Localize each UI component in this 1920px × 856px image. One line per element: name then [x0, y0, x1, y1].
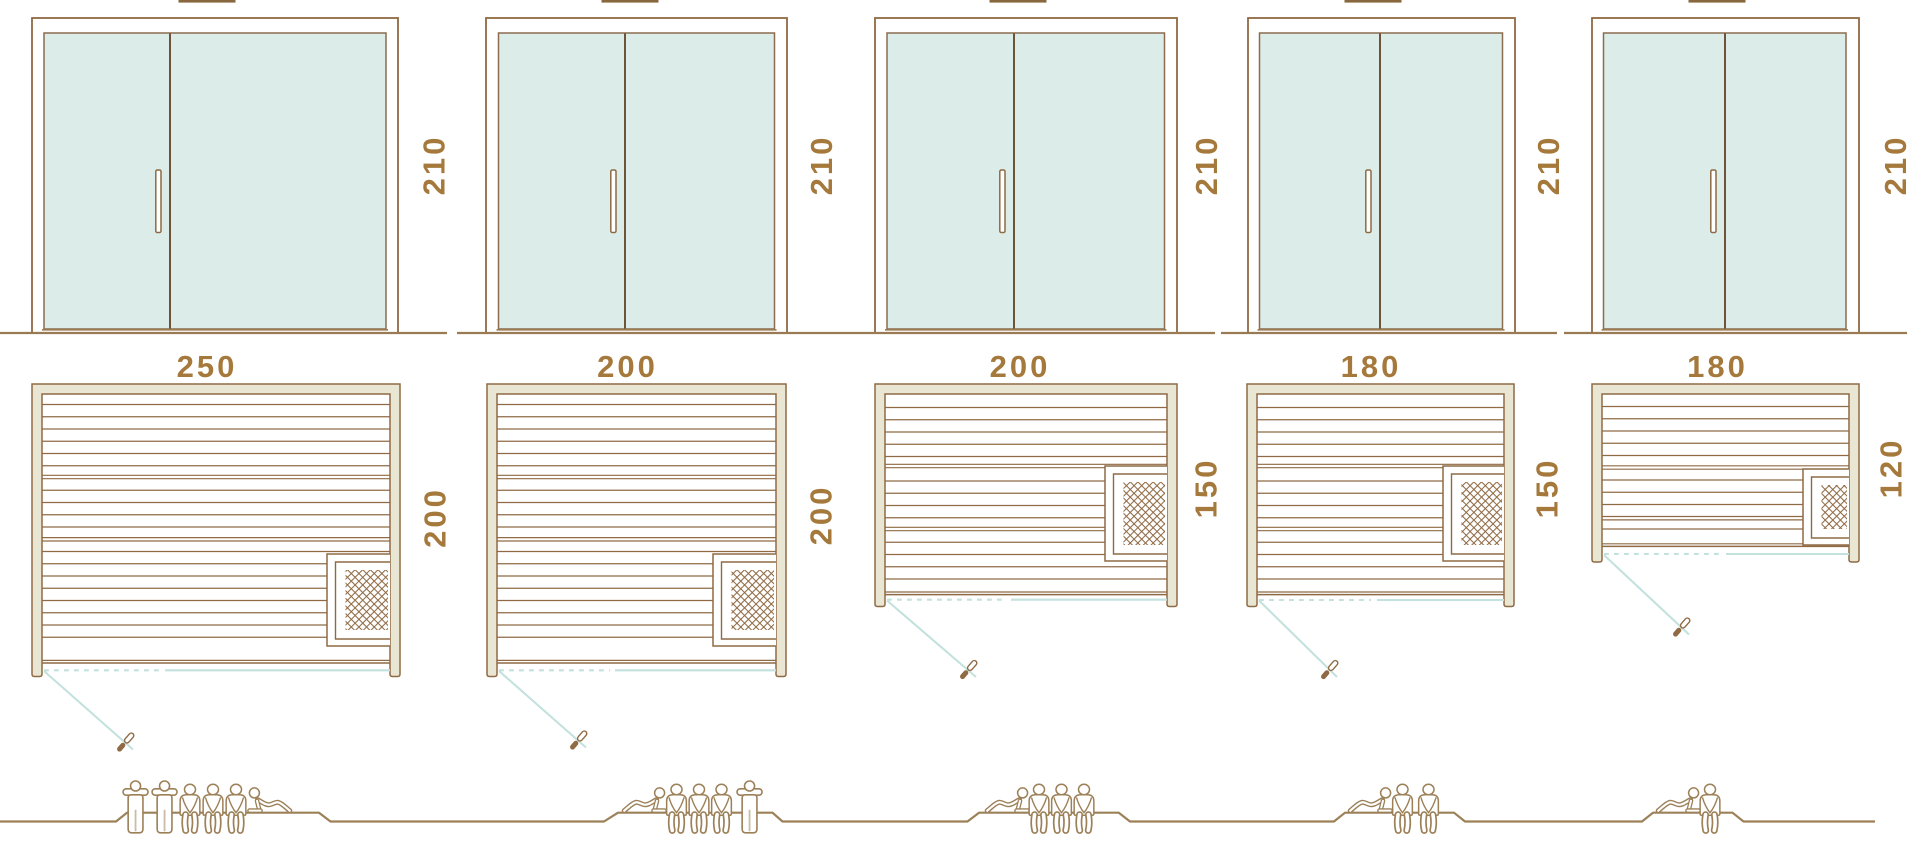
- svg-text:120: 120: [1874, 438, 1909, 499]
- svg-text:150: 150: [1188, 458, 1223, 519]
- svg-text:210: 210: [416, 135, 451, 196]
- svg-text:210: 210: [1531, 135, 1566, 196]
- svg-text:210: 210: [804, 135, 839, 196]
- svg-text:210: 210: [1878, 135, 1913, 196]
- svg-text:180: 180: [1341, 349, 1402, 384]
- svg-text:200: 200: [417, 487, 452, 548]
- svg-text:150: 150: [1530, 458, 1565, 519]
- svg-text:200: 200: [803, 485, 838, 546]
- svg-text:250: 250: [177, 349, 238, 384]
- svg-text:180: 180: [1687, 349, 1748, 384]
- svg-text:210: 210: [1189, 135, 1224, 196]
- svg-text:200: 200: [990, 349, 1051, 384]
- svg-text:200: 200: [597, 349, 658, 384]
